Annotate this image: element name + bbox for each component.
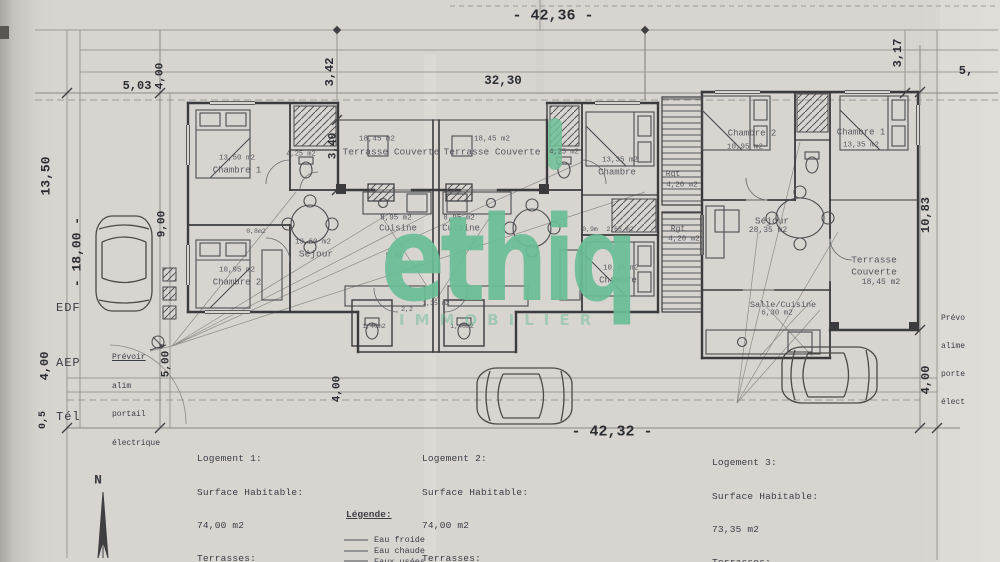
right-note-line: alime <box>941 342 965 352</box>
dim-13-50: 13,50 <box>40 156 53 195</box>
hall-width: 0,9m <box>582 227 598 234</box>
summary-line: 74,00 m2 <box>197 520 303 531</box>
dim-9-00: 9,00 <box>158 211 169 237</box>
car-top-view <box>477 368 572 424</box>
dim-total-bottom: - 42,32 - <box>571 425 652 440</box>
dim-10-83: 10,83 <box>920 197 932 233</box>
dim-5-03: 5,03 <box>123 80 152 92</box>
logement3-summary: Logement 3: Surface Habitable: 73,35 m2 … <box>712 435 818 562</box>
summary-title: Logement 1: <box>197 453 303 464</box>
gate-note: Prévoir alim portail électrique <box>112 334 160 458</box>
room-terrasse-couverte: Terrasse <box>851 255 897 265</box>
dim-32-30: 32,30 <box>484 75 522 88</box>
room-chambre2: Chambre 2 <box>728 130 777 139</box>
cellier-area: 5,65 <box>386 254 403 261</box>
room-area: 6,30 m2 <box>761 310 793 318</box>
summary-line: 73,35 m2 <box>712 524 818 535</box>
dim-4-00-right: 4,00 <box>920 366 932 395</box>
dim-5-00: 5,00 <box>162 351 173 377</box>
gate-note-line: électrique <box>112 439 160 449</box>
room-area: 18,45 m2 <box>474 136 510 144</box>
right-note-line: porte <box>941 370 965 380</box>
room-sejour: Séjour <box>299 249 333 259</box>
legend-item-eaux-usees: Eaux usées <box>374 557 425 562</box>
room-sde-area: 4,25 m2 <box>286 152 315 159</box>
summary-line: Terrasses: <box>197 553 303 562</box>
dim-4-00-mid: 4,00 <box>333 376 344 402</box>
dim-3-42: 3,42 <box>324 58 336 87</box>
utility-labels: EDF AEP Tél <box>56 263 81 445</box>
room-area: 8,95 m2 <box>380 215 412 223</box>
room-chambre1: Chambre 1 <box>837 129 886 138</box>
legend-item-eau-chaude: Eau chaude <box>374 546 425 556</box>
room-area: 19,60 m2 <box>295 239 331 247</box>
room-cuisine: Cuisine <box>442 225 480 234</box>
room-area: 18,45 m2 <box>862 279 900 287</box>
summary-line: Surface Habitable: <box>712 491 818 502</box>
rgt-area: 4,20 m2 <box>668 236 700 244</box>
room-area: 10,35 m2 <box>603 265 639 273</box>
right-note-line: Prévo <box>941 314 965 324</box>
room-chambre2: Chambre 2 <box>213 279 262 288</box>
scanned-floor-plan: - 42,36 - 5,03 4,00 3,42 32,30 3,17 5, 1… <box>0 0 1000 562</box>
room-terrasse-couverte: Terrasse Couverte <box>343 147 440 157</box>
small-area: 1,35 m2 <box>422 301 449 308</box>
hatched-elements <box>163 94 918 330</box>
wc-area: 1,40m2 <box>450 324 473 331</box>
small-area: 2,2 <box>401 307 413 314</box>
rgt-label: Rgt <box>666 171 680 179</box>
dim-3-17: 3,17 <box>892 39 904 68</box>
logement1-summary: Logement 1: Surface Habitable: 74,00 m2 … <box>197 431 303 562</box>
room-chambre: Chambre <box>599 277 637 286</box>
room-area: 8,95 m2 <box>443 215 475 223</box>
dim-total-top: - 42,36 - <box>512 9 593 24</box>
summary-title: Logement 2: <box>422 453 528 464</box>
legend-item-eau-froide: Eau froide <box>374 535 425 545</box>
room-area: 10,95 m2 <box>219 267 255 275</box>
dim-5-cut: 5, <box>959 65 973 77</box>
room-area: 10,95 m2 <box>727 144 763 152</box>
summary-line: Surface Habitable: <box>422 487 528 498</box>
wc-area: 1,40m2 <box>362 324 385 331</box>
room-cuisine: Cuisine <box>379 225 417 234</box>
summary-line: Terrasses: <box>712 557 818 562</box>
green-mark-artifact <box>548 118 562 170</box>
closet-area: 0,8m2 <box>246 229 266 236</box>
summary-line: Terrasses: <box>422 553 528 562</box>
room-cuisine: Salle/Cuisine <box>750 301 816 310</box>
right-edge-note: Prévo alime porte élect <box>941 296 965 417</box>
dim-3-40: 3,40 <box>329 133 340 159</box>
car-top-view <box>96 216 152 311</box>
summary-line: Surface Habitable: <box>197 487 303 498</box>
room-chambre: Chambre <box>598 169 636 178</box>
room-area: 13,50 m2 <box>219 155 255 163</box>
north-arrow-icon <box>98 492 108 558</box>
room-terrasse-couverte: Terrasse Couverte <box>444 147 541 157</box>
legend-line-samples <box>344 540 368 561</box>
room-chambre1: Chambre 1 <box>213 167 262 176</box>
gate-note-line: portail <box>112 410 160 420</box>
rgt-label: Rgt <box>671 226 685 234</box>
logement2-summary: Logement 2: Surface Habitable: 74,00 m2 … <box>422 431 528 562</box>
doors <box>266 160 852 312</box>
room-area: 28,35 m2 <box>749 227 787 235</box>
utility-aep: AEP <box>56 354 81 373</box>
right-note-line: élect <box>941 398 965 408</box>
dim-4-00-top: 4,00 <box>156 63 167 89</box>
room-area: 18,45 m2 <box>359 136 395 144</box>
north-label: N <box>94 474 102 487</box>
legend-title: Légende: <box>346 509 392 520</box>
room-sejour: Séjour <box>755 216 789 226</box>
room-area: 13,35 m2 <box>602 157 638 165</box>
dim-4-00-left: 4,00 <box>39 352 51 381</box>
summary-line: 74,00 m2 <box>422 520 528 531</box>
room-sde-area: 4,25 m2 <box>549 150 578 157</box>
utility-tel: Tél <box>56 408 81 427</box>
gate-note-line: alim <box>112 382 160 392</box>
rgt-area: 4,20 m2 <box>666 182 698 190</box>
hall-area: 2,65 m2 <box>606 227 633 234</box>
utility-edf: EDF <box>56 299 81 318</box>
dim-0-5: 0,5 <box>39 411 49 429</box>
room-terrasse-couverte: Couverte <box>851 267 897 277</box>
room-area: 13,35 m2 <box>843 142 879 150</box>
summary-title: Logement 3: <box>712 457 818 468</box>
cars <box>96 216 877 424</box>
gate-note-line: Prévoir <box>112 353 160 363</box>
